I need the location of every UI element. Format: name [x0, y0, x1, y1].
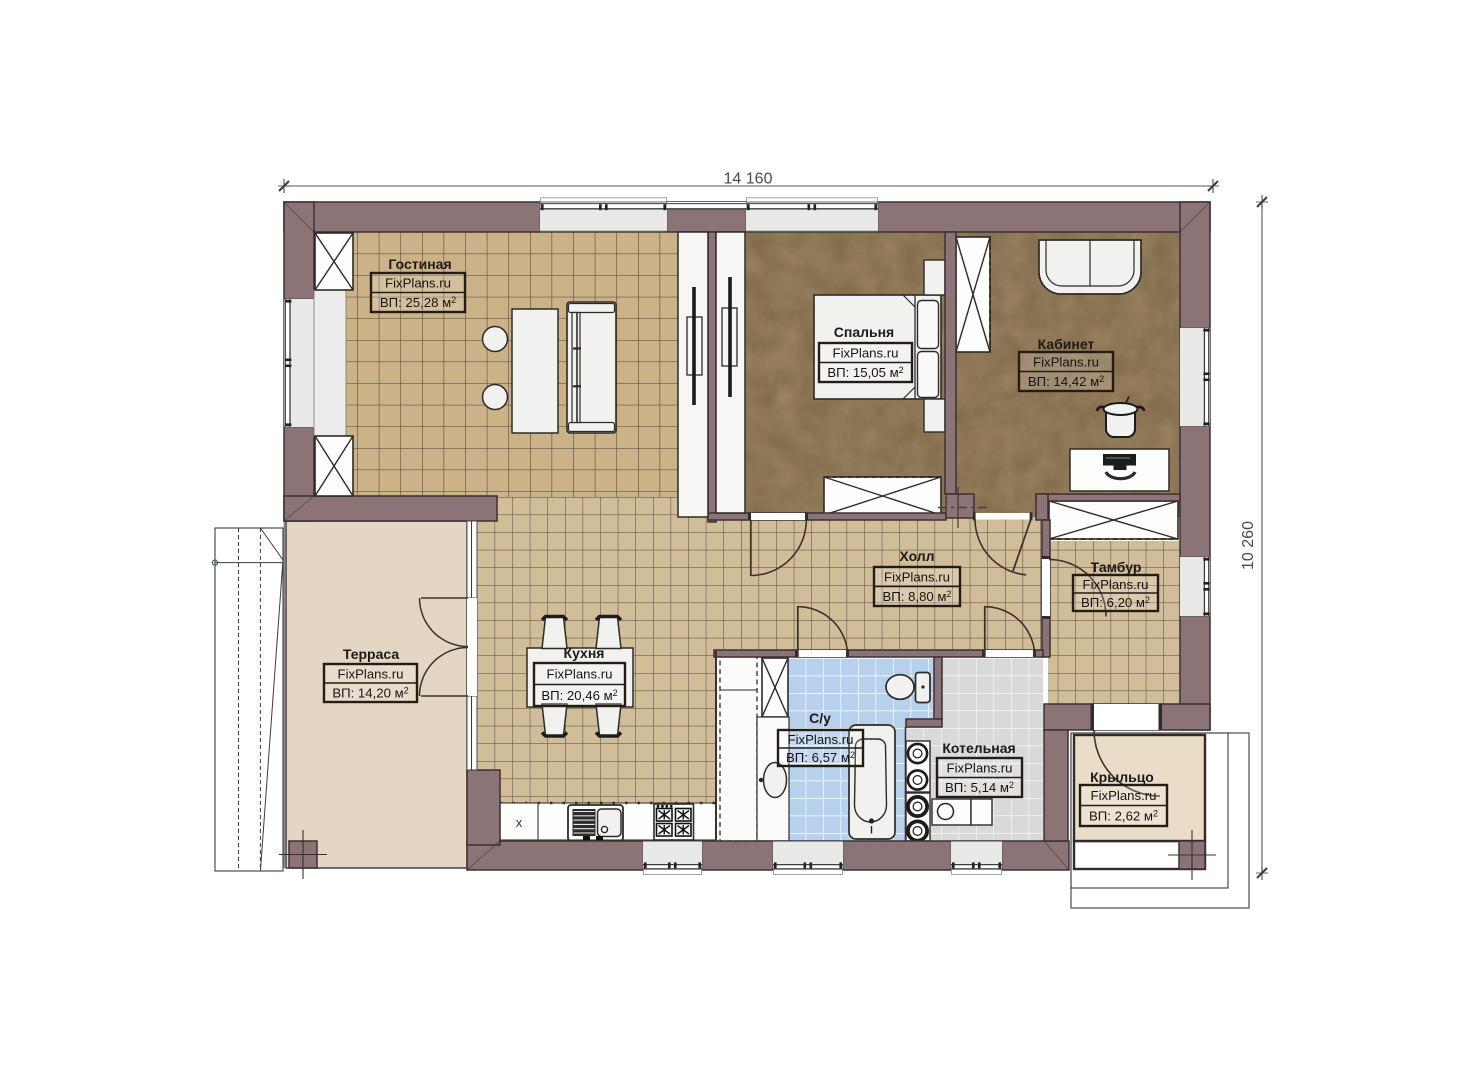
svg-text:Крыльцо: Крыльцо — [1090, 769, 1154, 785]
svg-text:ВП: 14,20 м2: ВП: 14,20 м2 — [332, 685, 408, 700]
svg-text:ВП: 8,80 м2: ВП: 8,80 м2 — [882, 589, 951, 604]
svg-text:ВП: 6,57 м2: ВП: 6,57 м2 — [786, 750, 855, 765]
svg-text:FixPlans.ru: FixPlans.ru — [884, 570, 950, 585]
svg-text:FixPlans.ru: FixPlans.ru — [788, 732, 854, 747]
svg-text:FixPlans.ru: FixPlans.ru — [1033, 355, 1099, 370]
svg-text:ВП: 14,42 м2: ВП: 14,42 м2 — [1028, 374, 1104, 389]
svg-text:FixPlans.ru: FixPlans.ru — [385, 276, 451, 291]
svg-text:Тамбур: Тамбур — [1091, 559, 1142, 575]
svg-text:Гостиная: Гостиная — [388, 256, 451, 272]
svg-text:Котельная: Котельная — [942, 740, 1015, 756]
svg-text:ВП: 2,62 м2: ВП: 2,62 м2 — [1089, 809, 1158, 824]
svg-text:x: x — [516, 815, 523, 830]
svg-text:Кухня: Кухня — [564, 645, 605, 661]
svg-text:FixPlans.ru: FixPlans.ru — [1091, 788, 1157, 803]
svg-text:FixPlans.ru: FixPlans.ru — [947, 761, 1013, 776]
svg-text:Холл: Холл — [899, 548, 934, 564]
svg-text:Терраса: Терраса — [343, 646, 399, 662]
svg-text:ВП: 20,46 м2: ВП: 20,46 м2 — [541, 688, 617, 703]
svg-text:ВП: 6,20 м2: ВП: 6,20 м2 — [1081, 595, 1150, 610]
svg-text:10 260: 10 260 — [1240, 521, 1257, 570]
svg-text:ВП: 15,05 м2: ВП: 15,05 м2 — [827, 365, 903, 380]
svg-text:FixPlans.ru: FixPlans.ru — [833, 346, 899, 361]
svg-text:С/у: С/у — [809, 710, 831, 726]
svg-text:Кабинет: Кабинет — [1038, 336, 1095, 352]
svg-text:FixPlans.ru: FixPlans.ru — [547, 667, 613, 682]
svg-text:FixPlans.ru: FixPlans.ru — [338, 666, 404, 681]
svg-text:Спальня: Спальня — [834, 324, 894, 340]
svg-text:FixPlans.ru: FixPlans.ru — [1083, 577, 1149, 592]
svg-text:ВП: 25,28 м2: ВП: 25,28 м2 — [380, 295, 456, 310]
svg-text:ВП: 5,14 м2: ВП: 5,14 м2 — [945, 780, 1014, 795]
svg-text:14 160: 14 160 — [724, 171, 773, 188]
